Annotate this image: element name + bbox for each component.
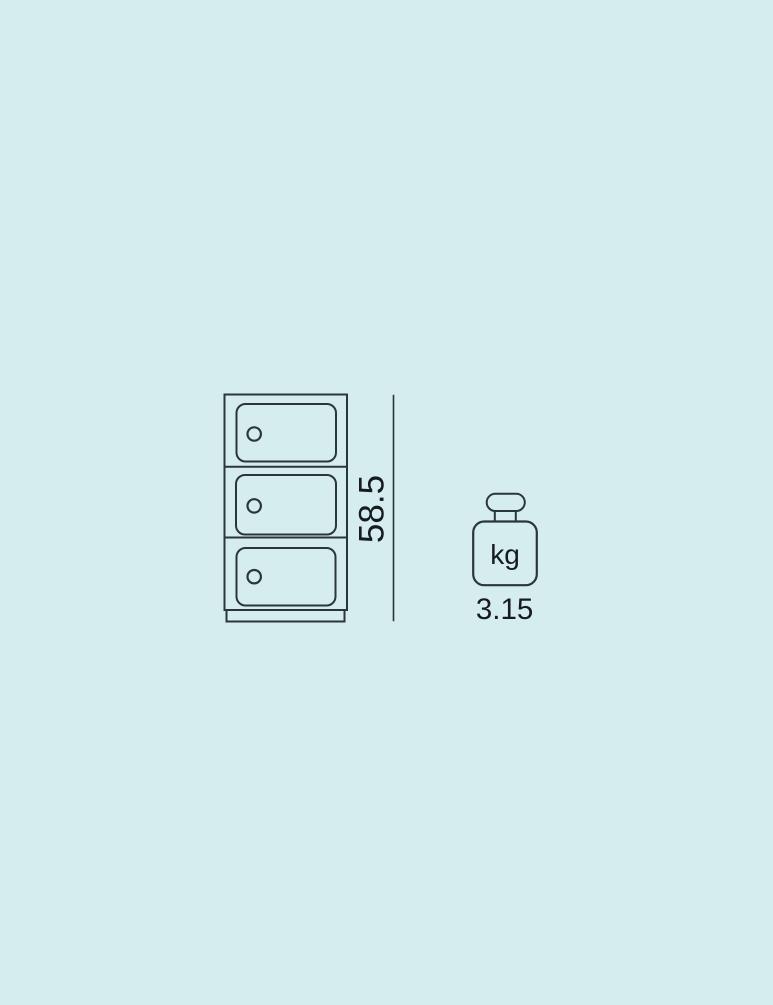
svg-text:58.5: 58.5 <box>353 475 392 543</box>
svg-text:3.15: 3.15 <box>476 593 533 626</box>
svg-text:kg: kg <box>490 539 520 570</box>
